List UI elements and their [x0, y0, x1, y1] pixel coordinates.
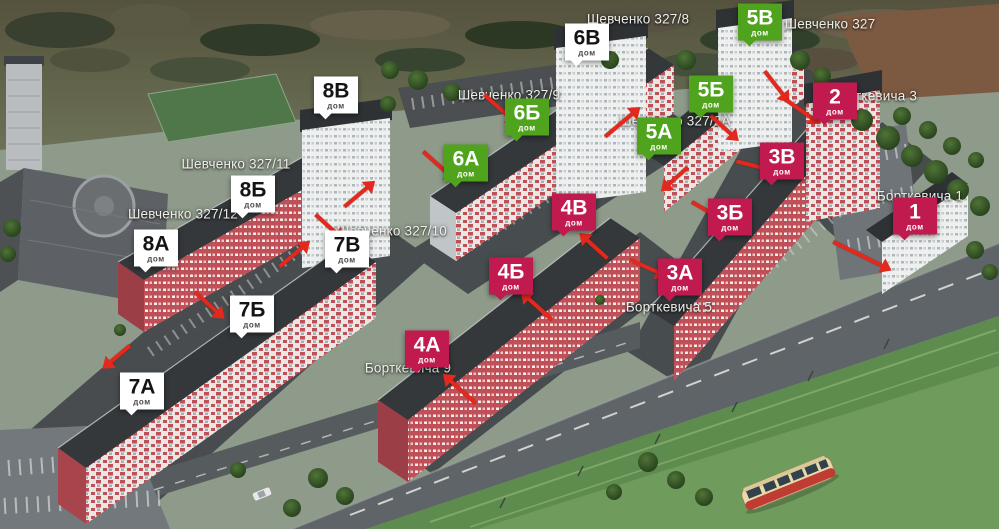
badge-dom-caption: дом — [559, 220, 589, 228]
direction-arrow — [278, 246, 304, 268]
direction-arrow — [629, 258, 658, 274]
badge-dom-caption: дом — [696, 102, 726, 110]
direction-arrow — [832, 240, 883, 268]
badge-dom-caption: дом — [332, 257, 362, 265]
badge-number: 6А — [451, 149, 481, 170]
badge-dom-caption: дом — [715, 225, 745, 233]
badge-number: 4Б — [496, 262, 526, 283]
building-badge-3В[interactable]: 3Вдом — [760, 143, 804, 180]
direction-arrow — [449, 379, 477, 405]
direction-arrow — [527, 297, 553, 321]
building-badge-4В[interactable]: 4Вдом — [552, 194, 596, 231]
badge-number: 5В — [745, 8, 775, 29]
direction-arrow — [785, 98, 814, 120]
building-badge-5В[interactable]: 5Вдом — [738, 4, 782, 41]
badge-number: 8В — [321, 81, 351, 102]
badge-number: 4В — [559, 198, 589, 219]
badge-dom-caption: дом — [412, 357, 442, 365]
building-badge-7А[interactable]: 7Адом — [120, 373, 164, 410]
street-label: Шевченко 327/12 — [128, 207, 238, 222]
building-badge-3Б[interactable]: 3Бдом — [708, 199, 752, 236]
building-badge-7Б[interactable]: 7Бдом — [230, 296, 274, 333]
badge-dom-caption: дом — [745, 30, 775, 38]
building-badge-6А[interactable]: 6Адом — [444, 145, 488, 182]
building-badge-4Б[interactable]: 4Бдом — [489, 258, 533, 295]
building-badge-8А[interactable]: 8Адом — [134, 230, 178, 267]
badge-dom-caption: дом — [127, 399, 157, 407]
badge-dom-caption: дом — [665, 285, 695, 293]
direction-arrow — [585, 238, 608, 260]
badge-dom-caption: дом — [237, 322, 267, 330]
badge-dom-caption: дом — [572, 50, 602, 58]
badge-dom-caption: дом — [644, 144, 674, 152]
badge-dom-caption: дом — [238, 202, 268, 210]
badge-dom-caption: дом — [512, 125, 542, 133]
badge-number: 5Б — [696, 80, 726, 101]
direction-arrow — [109, 344, 131, 364]
building-badge-6В[interactable]: 6Вдом — [565, 24, 609, 61]
badge-number: 7А — [127, 377, 157, 398]
badge-number: 4А — [412, 335, 442, 356]
badge-dom-caption: дом — [451, 171, 481, 179]
badge-number: 3В — [767, 147, 797, 168]
direction-arrow — [604, 112, 634, 138]
badge-number: 6Б — [512, 103, 542, 124]
direction-arrow — [194, 290, 219, 313]
badge-dom-caption: дом — [767, 169, 797, 177]
building-badge-6Б[interactable]: 6Бдом — [505, 99, 549, 136]
building-badge-7В[interactable]: 7Вдом — [325, 231, 369, 268]
badge-dom-caption: дом — [820, 109, 850, 117]
building-badge-2[interactable]: 2дом — [813, 83, 857, 120]
direction-arrow — [709, 114, 732, 136]
building-badge-5А[interactable]: 5Адом — [637, 118, 681, 155]
masterplan-aerial-view: Шевченко 327/8Шевченко 327Шевченко 327/9… — [0, 0, 999, 529]
badge-number: 3Б — [715, 203, 745, 224]
building-badge-1[interactable]: 1дом — [893, 198, 937, 235]
badge-dom-caption: дом — [141, 256, 171, 264]
street-label: Шевченко 327 — [785, 17, 876, 32]
badge-number: 2 — [820, 87, 850, 108]
building-badge-3А[interactable]: 3Адом — [658, 259, 702, 296]
badge-number: 1 — [900, 202, 930, 223]
badge-number: 8Б — [238, 180, 268, 201]
badge-number: 3А — [665, 263, 695, 284]
building-badge-8Б[interactable]: 8Бдом — [231, 176, 275, 213]
badge-number: 6В — [572, 28, 602, 49]
building-badge-5Б[interactable]: 5Бдом — [689, 76, 733, 113]
badge-number: 7В — [332, 235, 362, 256]
badge-dom-caption: дом — [496, 284, 526, 292]
building-badge-4А[interactable]: 4Адом — [405, 331, 449, 368]
badge-number: 5А — [644, 122, 674, 143]
badge-number: 8А — [141, 234, 171, 255]
direction-arrow — [343, 186, 369, 208]
building-badge-8В[interactable]: 8Вдом — [314, 77, 358, 114]
badge-dom-caption: дом — [321, 103, 351, 111]
direction-arrow — [667, 166, 689, 186]
badge-number: 7Б — [237, 300, 267, 321]
direction-arrow — [763, 70, 785, 96]
badge-dom-caption: дом — [900, 224, 930, 232]
street-label: Шевченко 327/11 — [181, 157, 290, 172]
labels-overlay: Шевченко 327/8Шевченко 327Шевченко 327/9… — [0, 0, 999, 529]
